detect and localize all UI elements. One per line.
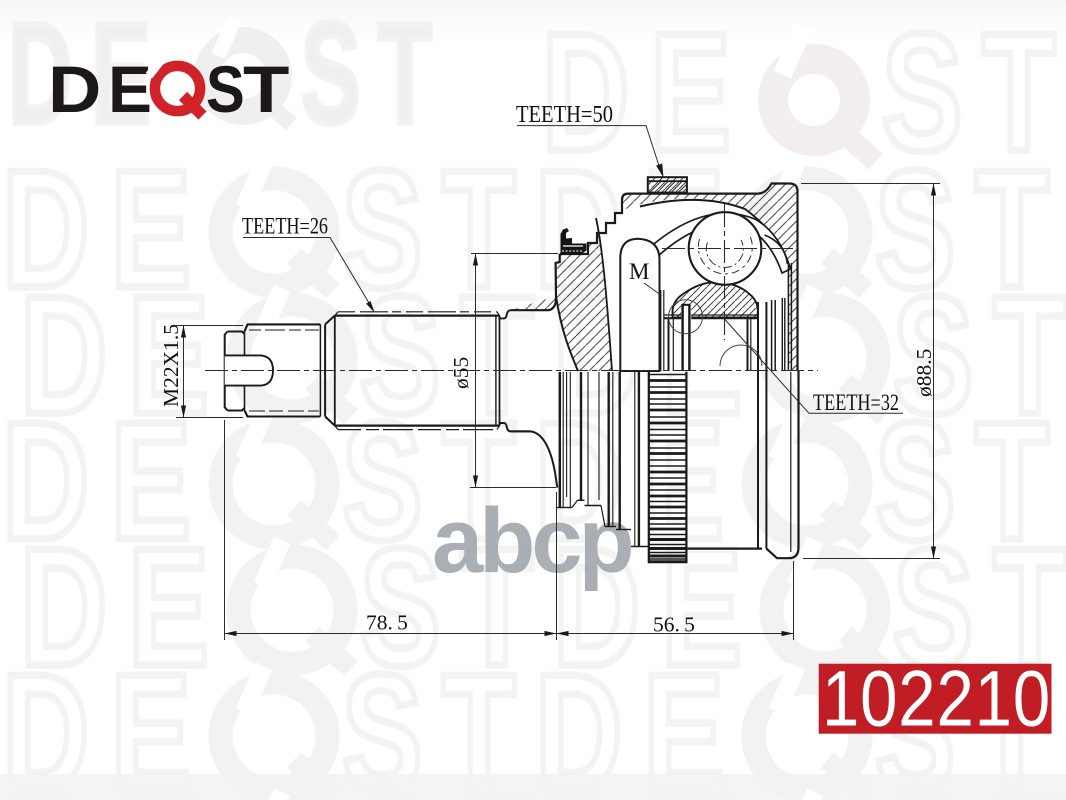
svg-text:TEETH=32: TEETH=32 bbox=[813, 390, 899, 415]
svg-text:D: D bbox=[48, 53, 101, 126]
svg-text:E: E bbox=[108, 52, 152, 126]
svg-text:M22X1.5: M22X1.5 bbox=[159, 324, 183, 407]
svg-text:ø55: ø55 bbox=[449, 357, 473, 389]
svg-text:78. 5: 78. 5 bbox=[366, 611, 408, 635]
svg-text:ø88.5: ø88.5 bbox=[912, 349, 936, 397]
svg-text:ST: ST bbox=[893, 766, 1066, 800]
svg-text:T: T bbox=[243, 54, 289, 127]
svg-text:DE: DE bbox=[553, 766, 763, 800]
svg-text:ST: ST bbox=[360, 766, 553, 800]
svg-text:M: M bbox=[629, 259, 649, 284]
svg-text:102210: 102210 bbox=[822, 654, 1051, 742]
svg-text:TEETH=26: TEETH=26 bbox=[242, 214, 328, 239]
svg-text:TEETH=50: TEETH=50 bbox=[516, 102, 613, 128]
svg-text:S: S bbox=[206, 54, 245, 127]
svg-text:DE: DE bbox=[20, 766, 230, 800]
svg-text:abcp: abcp bbox=[432, 490, 632, 592]
svg-text:ST: ST bbox=[301, 0, 449, 154]
svg-text:56. 5: 56. 5 bbox=[653, 613, 695, 637]
